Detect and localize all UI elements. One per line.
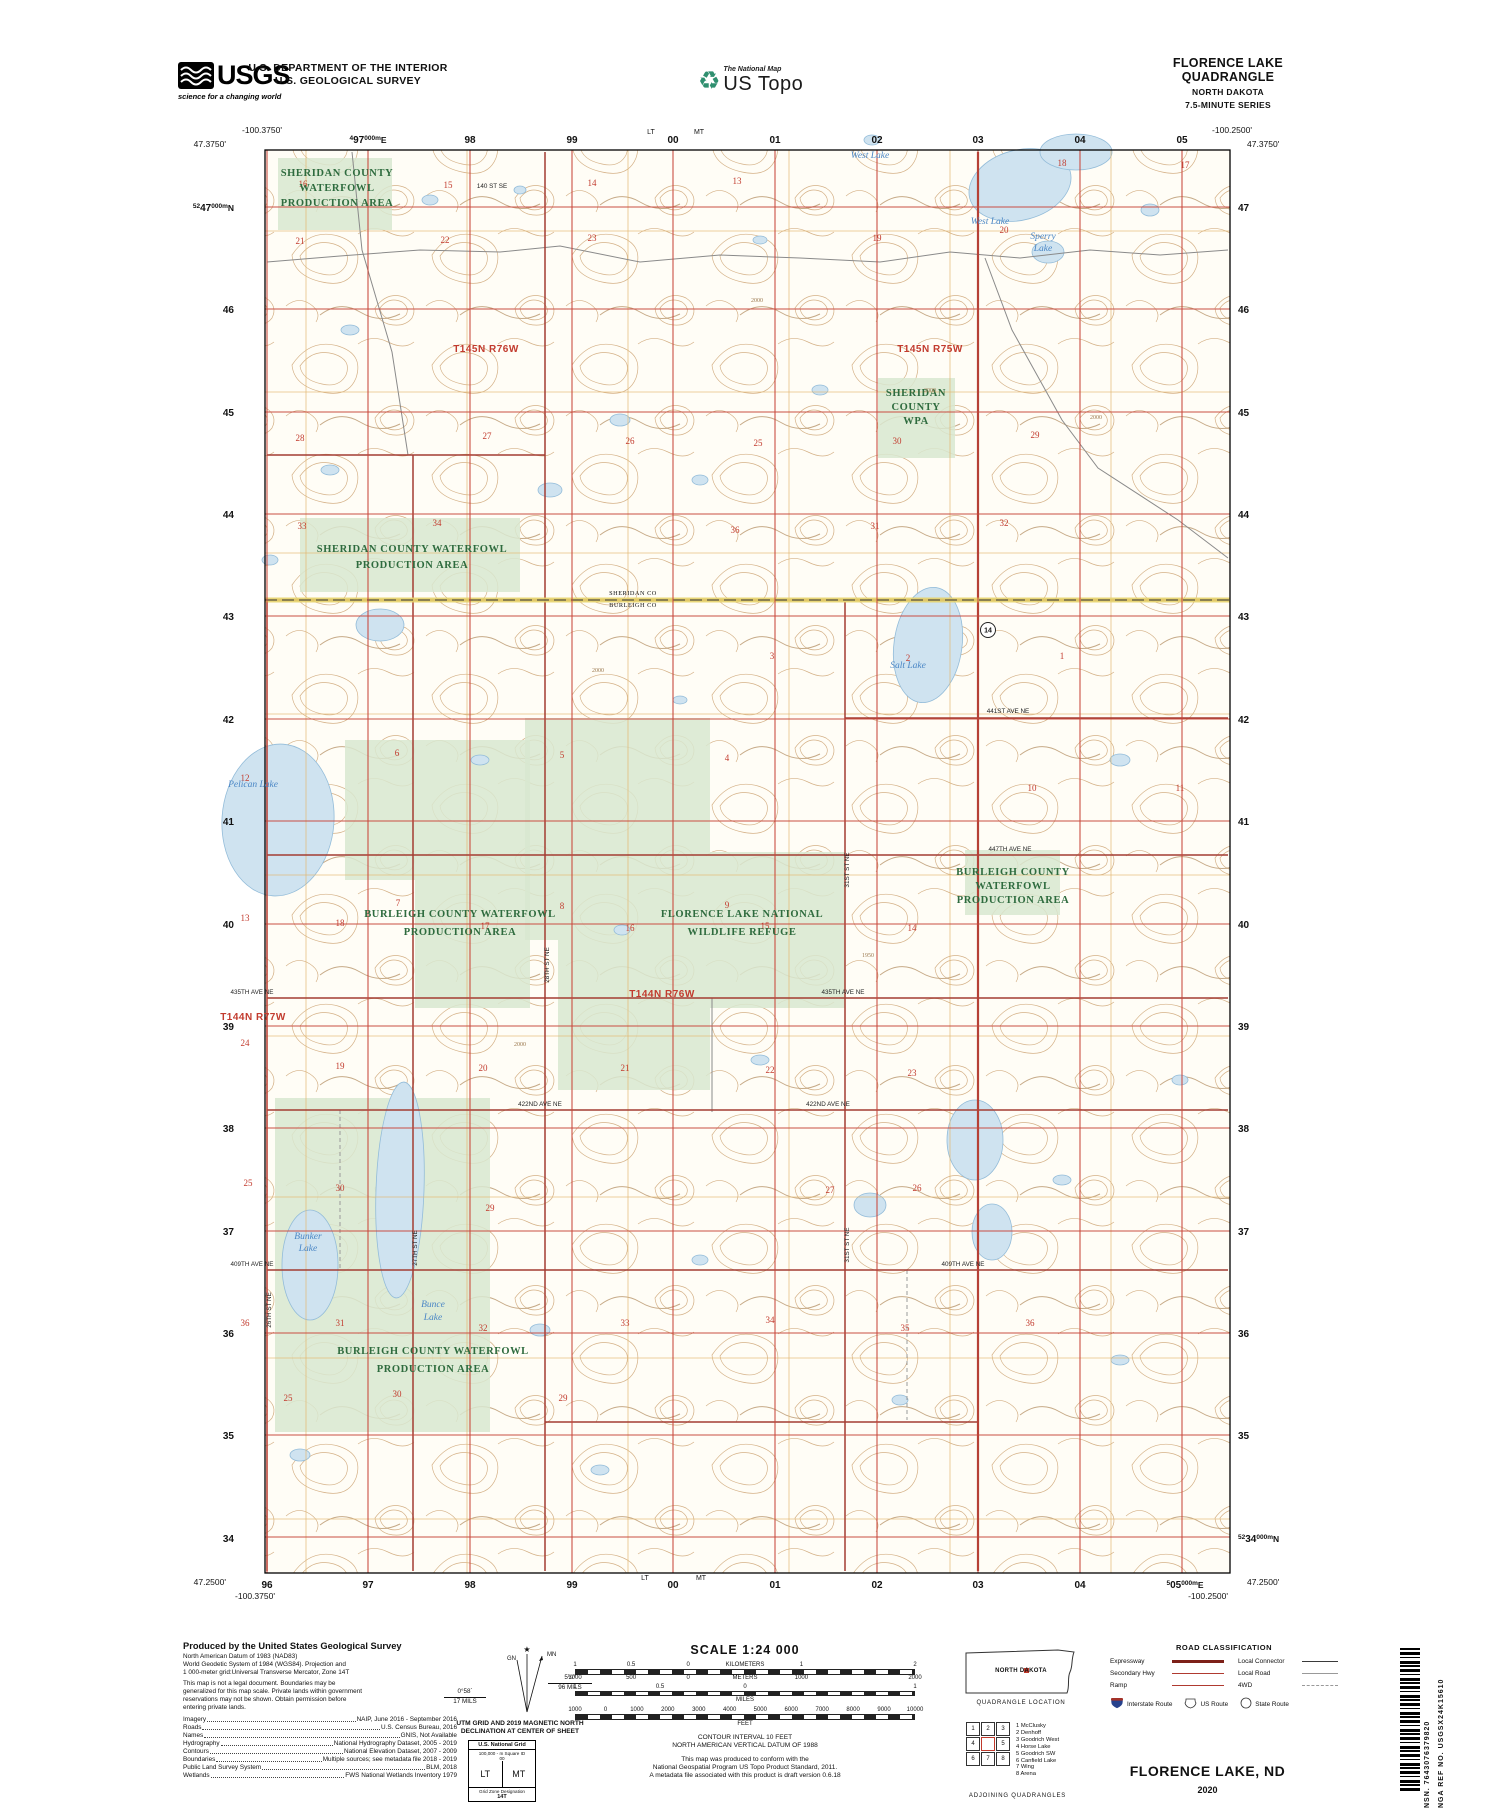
map-label-road: 422ND AVE NE (806, 1101, 850, 1108)
map-label-area: SHERIDAN (886, 388, 946, 399)
map-label-road: 140 ST SE (477, 183, 507, 190)
map-notes: CONTOUR INTERVAL 10 FEET NORTH AMERICAN … (535, 1734, 955, 1780)
scale-tick-labels: 1000010002000300040005000600070008000900… (575, 1707, 915, 1714)
map-label-grid: 36 (1238, 1329, 1250, 1340)
data-source-row: BoundariesMultiple sources; see metadata… (183, 1756, 457, 1764)
map-label-road: 409TH AVE NE (942, 1261, 985, 1268)
map-label-grid: 35 (1238, 1431, 1250, 1442)
map-label-twp: T145N R75W (897, 344, 963, 355)
dotted-leader (262, 1764, 425, 1771)
scale-tick: 1 (573, 1662, 576, 1668)
lake (812, 385, 828, 395)
map-label-road: 435TH AVE NE (822, 989, 865, 996)
map-label-grid: 02 (871, 1580, 883, 1591)
road-class-sample (1302, 1661, 1338, 1662)
map-label-grid: 36 (223, 1329, 235, 1340)
datum-notes: North American Datum of 1983 (NAD83)Worl… (183, 1653, 457, 1676)
map-label-grid: 99 (566, 135, 578, 146)
adjoining-cell: 6 (966, 1752, 980, 1766)
map-label-road: 26TH ST NE (266, 1292, 273, 1328)
map-label-sec: 27 (826, 1185, 836, 1195)
scale-block: SCALE 1:24 000 10.50KILOMETERS1210005000… (575, 1643, 915, 1731)
adjoining-cell: 4 (966, 1737, 980, 1751)
usng-zone-value: 14T (469, 1794, 535, 1800)
data-source-row: NamesGNIS, Not Available (183, 1732, 457, 1740)
road-class-label: 4WD (1238, 1682, 1302, 1689)
map-label-area: FLORENCE LAKE NATIONAL (661, 909, 823, 920)
source-value: National Hydrography Dataset, 2005 - 201… (334, 1740, 457, 1748)
gn-degrees: 0°58´ (444, 1688, 486, 1698)
interstate-route-legend: Interstate Route (1110, 1697, 1172, 1711)
map-label-coord: -100.2500' (1188, 1591, 1228, 1601)
map-label-ltmt: MT (694, 129, 705, 136)
map-label-grid: 98 (464, 135, 476, 146)
scale-tick: 0.5 (627, 1662, 635, 1668)
map-label-sec: 19 (336, 1061, 346, 1071)
sheet-name: FLORENCE LAKE, ND (1100, 1763, 1315, 1779)
produced-by: Produced by the United States Geological… (183, 1641, 457, 1651)
road-class-label: Local Connector (1238, 1658, 1302, 1665)
protected-area-polygon (300, 518, 520, 592)
adjoining-quad-name: 1 McClusky (1016, 1723, 1059, 1730)
lake (290, 1449, 310, 1461)
lake (1110, 754, 1130, 766)
dotted-leader (210, 1748, 343, 1755)
scale-tick: 0 (604, 1707, 607, 1713)
adjoining-quad-name: 4 Horse Lake (1016, 1744, 1059, 1751)
map-label-cnty: BURLEIGH CO (609, 602, 657, 609)
source-label: Roads (183, 1724, 201, 1732)
map-label-road: 435TH AVE NE (231, 989, 274, 996)
map-label-sec: 4 (725, 753, 730, 763)
nsn-number: NSN. 7643076379820 (1424, 1648, 1431, 1808)
adjoining-quad-name: 7 Wing (1016, 1764, 1059, 1771)
shield-label: State Route (1255, 1701, 1289, 1708)
map-label-water: Pelican Lake (227, 780, 278, 790)
map-label-sec: 30 (336, 1183, 346, 1193)
map-label-sec: 36 (731, 525, 741, 535)
map-label-grid: 43 (223, 612, 235, 623)
map-label-road: 28TH ST NE (544, 947, 551, 983)
scale-tick: 500 (626, 1675, 636, 1681)
interstate-shield-icon (1110, 1697, 1124, 1711)
svg-text:★: ★ (523, 1645, 530, 1654)
adjoining-cell: 3 (996, 1722, 1010, 1736)
map-label-grid: 39 (1238, 1022, 1250, 1033)
vertical-datum-note: NORTH AMERICAN VERTICAL DATUM OF 1988 (535, 1742, 955, 1750)
adjoining-cell: 5 (996, 1737, 1010, 1751)
map-label-grid: 47 (1238, 203, 1250, 214)
lake (356, 609, 404, 641)
map-label-sec: 25 (284, 1393, 294, 1403)
source-label: Wetlands (183, 1772, 210, 1780)
shield-label: Interstate Route (1127, 1701, 1172, 1708)
scale-tick: 8000 (846, 1707, 859, 1713)
map-label-sec: 33 (621, 1318, 631, 1328)
map-label-grid: 97 (362, 1580, 374, 1591)
map-label-grid: 46 (223, 305, 235, 316)
map-label-sec: 29 (1031, 430, 1041, 440)
road-classification-legend: ROAD CLASSIFICATION ExpresswayLocal Conn… (1110, 1643, 1338, 1711)
road-classification-title: ROAD CLASSIFICATION (1110, 1643, 1338, 1652)
data-sources-list: ImageryNAIP, June 2016 - September 2016R… (183, 1716, 457, 1780)
dotted-leader (221, 1740, 333, 1747)
map-label-sec: 32 (1000, 518, 1009, 528)
map-label-sec: 36 (241, 1318, 251, 1328)
map-label-sec: 21 (296, 236, 305, 246)
map-label-grid: 00 (667, 1580, 679, 1591)
map-label-water: Salt Lake (890, 661, 926, 671)
lake (341, 325, 359, 335)
map-label-road: 422ND AVE NE (518, 1101, 562, 1108)
map-label-sec: 6 (395, 748, 400, 758)
barcode (1400, 1648, 1420, 1793)
map-label-ltmt: LT (647, 129, 655, 136)
map-label-sec: 31 (871, 521, 880, 531)
credit-line: reservations may not be shown. Obtain pe… (183, 1696, 457, 1704)
map-label-area: WILDLIFE REFUGE (687, 927, 796, 938)
adjoining-center-cell (981, 1737, 995, 1751)
sheet-year: 2020 (1100, 1785, 1315, 1795)
map-label-coord: -100.3750' (242, 125, 282, 135)
adjoining-quads-caption: ADJOINING QUADRANGLES (935, 1793, 1100, 1799)
scale-tick-labels: 10005000METERS10002000 (575, 1675, 915, 1682)
road-class-sample (1302, 1673, 1338, 1674)
map-label-sec: 18 (336, 918, 346, 928)
map-label-water: Sperry (1030, 232, 1056, 242)
us-route-legend: US Route (1184, 1698, 1228, 1711)
map-label-sec: 21 (621, 1063, 630, 1073)
map-label-sec: 29 (559, 1393, 569, 1403)
road-class-label: Secondary Hwy (1110, 1670, 1172, 1677)
map-label-grid: 41 (223, 817, 235, 828)
map-label-sec: 17 (1181, 160, 1191, 170)
map-label-sec: 22 (441, 235, 450, 245)
map-label-grid: 43 (1238, 612, 1250, 623)
scale-tick: 0 (687, 1662, 690, 1668)
scale-tick: 6000 (785, 1707, 798, 1713)
map-label-grid: 40 (223, 920, 235, 931)
source-value: FWS National Wetlands Inventory 1979 (345, 1772, 457, 1780)
state-route-number: 14 (984, 628, 992, 635)
map-label-road: 441ST AVE NE (987, 708, 1029, 715)
lake (947, 1100, 1003, 1180)
scale-tick: 1000 (630, 1707, 643, 1713)
adjoining-quad-name: 8 Arena (1016, 1771, 1059, 1778)
adjoining-quad-name: 2 Denhoff (1016, 1730, 1059, 1737)
data-source-row: Public Land Survey SystemBLM, 2018 (183, 1764, 457, 1772)
map-label-sec: 18 (1058, 158, 1068, 168)
map-label-elev: 2000 (514, 1042, 526, 1048)
scale-tick: 1000 (795, 1675, 808, 1681)
map-label-sec: 36 (1026, 1318, 1036, 1328)
lake (692, 1255, 708, 1265)
map-layers: 1416151413181721222319202827262530293334… (193, 125, 1280, 1601)
road-class-label: Local Road (1238, 1670, 1302, 1677)
adjoining-cell: 2 (981, 1722, 995, 1736)
map-label-grid: 38 (223, 1124, 235, 1135)
scale-tick: 7000 (815, 1707, 828, 1713)
lake (753, 236, 767, 244)
map-label-coord: -100.3750' (235, 1591, 275, 1601)
scale-bars: 10.50KILOMETERS1210005000METERS100020001… (575, 1662, 915, 1731)
map-label-grid: 505000mE (1166, 1580, 1203, 1591)
state-name: NORTH DAKOTA (962, 1668, 1080, 1674)
map-label-water: West Lake (971, 217, 1009, 227)
map-label-water: Lake (1033, 244, 1052, 254)
map-label-sec: 10 (1028, 783, 1038, 793)
scale-tick: 3000 (692, 1707, 705, 1713)
nga-ref-number: NGA REF NO. USGSX24K15610 (1438, 1648, 1445, 1808)
lake (1141, 204, 1159, 216)
contour-interval-note: CONTOUR INTERVAL 10 FEET (535, 1734, 955, 1742)
scale-tick-labels: 10.50KILOMETERS12 (575, 1662, 915, 1669)
scale-caption: FEET (575, 1720, 915, 1729)
dotted-leader (204, 1732, 399, 1739)
quadrangle-location: NORTH DAKOTA QUADRANGLE LOCATION (962, 1648, 1080, 1706)
road-class-sample (1302, 1685, 1338, 1686)
lake (692, 475, 708, 485)
dotted-leader (202, 1724, 379, 1731)
map-label-grid: 45 (223, 408, 235, 419)
map-label-grid: 42 (223, 715, 235, 726)
source-label: Public Land Survey System (183, 1764, 261, 1772)
lake (514, 186, 526, 194)
map-label-area: PRODUCTION AREA (957, 895, 1070, 906)
lake (422, 195, 438, 205)
map-label-twp: T144N R76W (629, 989, 695, 1000)
road-class-sample (1172, 1685, 1224, 1686)
map-label-elev: 2000 (592, 668, 604, 674)
map-label-sec: 11 (1176, 783, 1185, 793)
map-label-ltmt: LT (641, 1575, 649, 1582)
map-label-grid: 46 (1238, 305, 1250, 316)
map-label-grid: 42 (1238, 715, 1250, 726)
map-label-sec: 31 (336, 1318, 345, 1328)
map-label-grid: 40 (1238, 920, 1250, 931)
us-shield-icon (1184, 1698, 1197, 1711)
map-label-sec: 19 (873, 233, 883, 243)
usng-square-mt: MT (503, 1761, 536, 1787)
dotted-leader (211, 1772, 345, 1779)
road-class-label: Expressway (1110, 1658, 1172, 1665)
scale-tick: 2000 (661, 1707, 674, 1713)
credit-line: generalized for this map scale. Private … (183, 1688, 457, 1696)
source-label: Boundaries (183, 1756, 215, 1764)
map-label-water: Lake (298, 1244, 317, 1254)
map-label-area: SHERIDAN COUNTY (281, 168, 394, 179)
map-label-sec: 22 (766, 1065, 775, 1075)
scale-tick: 0 (687, 1675, 690, 1681)
map-label-sec: 14 (908, 923, 918, 933)
scale-tick: 9000 (877, 1707, 890, 1713)
map-label-sec: 13 (733, 176, 743, 186)
mn-label: MN (547, 1652, 556, 1658)
map-label-sec: 29 (486, 1203, 496, 1213)
gn-declination-value: 0°58´ 17 MILS (444, 1688, 486, 1705)
map-label-area: BURLEIGH COUNTY WATERFOWL (337, 1346, 529, 1357)
gn-label: GN (507, 1656, 516, 1662)
map-label-elev: 2000 (1090, 415, 1102, 421)
source-label: Contours (183, 1748, 209, 1756)
map-label-coord: 47.2500' (1247, 1577, 1280, 1587)
scale-tick: 5000 (754, 1707, 767, 1713)
map-label-sec: 30 (393, 1389, 403, 1399)
lake (1111, 1355, 1129, 1365)
source-value: Multiple sources; see metadata file 2018… (323, 1756, 457, 1764)
adjoining-quad-name: 5 Goodrich SW (1016, 1751, 1059, 1758)
production-credits: Produced by the United States Geological… (183, 1641, 457, 1780)
lake (1053, 1175, 1071, 1185)
adjoining-cell: 8 (996, 1752, 1010, 1766)
shield-label: US Route (1200, 1701, 1228, 1708)
map-label-sec: 25 (754, 438, 764, 448)
adjoining-quad-name: 6 Canfield Lake (1016, 1758, 1059, 1765)
credit-line: World Geodetic System of 1984 (WGS84). P… (183, 1661, 457, 1669)
usgs-topo-sheet: USGS science for a changing world U.S. D… (0, 0, 1500, 1813)
map-label-road: 27TH ST NE (412, 1230, 419, 1266)
map-label-water: Bunker (294, 1232, 322, 1242)
credit-line: North American Datum of 1983 (NAD83) (183, 1653, 457, 1661)
map-label-coord: -100.2500' (1212, 125, 1252, 135)
topo-map: 1416151413181721222319202827262530293334… (0, 0, 1500, 1620)
map-label-sec: 1 (1060, 651, 1065, 661)
map-label-sec: 35 (901, 1323, 911, 1333)
map-label-area: BURLEIGH COUNTY WATERFOWL (364, 909, 556, 920)
map-label-grid: 02 (871, 135, 883, 146)
map-label-road: 31ST ST NE (844, 1227, 851, 1262)
map-label-sec: 24 (241, 1038, 251, 1048)
scale-tick: 2000 (908, 1675, 921, 1681)
map-label-grid: 03 (972, 135, 984, 146)
scale-title: SCALE 1:24 000 (575, 1643, 915, 1657)
road-class-sample (1172, 1660, 1224, 1663)
map-label-grid: 03 (972, 1580, 984, 1591)
source-label: Imagery (183, 1716, 206, 1724)
map-label-elev: 1950 (862, 953, 874, 959)
lake (591, 1465, 609, 1475)
map-label-grid: 45 (1238, 408, 1250, 419)
map-label-area: COUNTY (891, 402, 940, 413)
map-label-sec: 26 (913, 1183, 923, 1193)
lake (1172, 1075, 1188, 1085)
scale-tick: 1 (913, 1684, 916, 1690)
map-label-twp: T145N R76W (453, 344, 519, 355)
map-label-water: Bunce (421, 1300, 445, 1310)
source-value: National Elevation Dataset, 2007 - 2009 (344, 1748, 457, 1756)
source-label: Hydrography (183, 1740, 220, 1748)
lake (610, 414, 630, 426)
scale-tick: 1000 (568, 1707, 581, 1713)
source-value: BLM, 2018 (426, 1764, 457, 1772)
lake (321, 465, 339, 475)
map-label-area: WPA (903, 416, 929, 427)
state-shield-icon (1240, 1697, 1252, 1711)
data-source-row: ImageryNAIP, June 2016 - September 2016 (183, 1716, 457, 1724)
lake (530, 1324, 550, 1336)
map-label-grid: 39 (223, 1022, 235, 1033)
dotted-leader (216, 1756, 321, 1763)
map-label-sec: 28 (296, 433, 306, 443)
credit-line: entering private lands. (183, 1704, 457, 1712)
map-label-coord: 47.3750' (1247, 139, 1280, 149)
credit-line: This map is not a legal document. Bounda… (183, 1680, 457, 1688)
data-source-row: ContoursNational Elevation Dataset, 2007… (183, 1748, 457, 1756)
map-label-area: BURLEIGH COUNTY (956, 867, 1070, 878)
map-label-road: 447TH AVE NE (989, 846, 1032, 853)
map-label-sec: 23 (908, 1068, 918, 1078)
map-label-sec: 34 (433, 518, 443, 528)
scale-tick-labels: 10.501 (575, 1684, 915, 1691)
scale-tick: KILOMETERS (726, 1662, 765, 1668)
map-label-sec: 32 (479, 1323, 488, 1333)
state-route-legend: State Route (1240, 1697, 1289, 1711)
scale-tick: 2 (913, 1662, 916, 1668)
map-label-road: 409TH AVE NE (231, 1261, 274, 1268)
road-class-label: Ramp (1110, 1682, 1172, 1689)
map-label-coord: 47.2500' (194, 1577, 227, 1587)
lake (538, 483, 562, 497)
map-label-grid: 44 (223, 510, 235, 521)
map-label-road: 31ST ST NE (844, 852, 851, 887)
us-national-grid-box: U.S. National Grid 100,000 - m Square ID… (468, 1740, 536, 1802)
source-label: Names (183, 1732, 203, 1740)
map-label-sec: 3 (770, 651, 775, 661)
map-label-ltmt: MT (696, 1575, 707, 1582)
map-label-grid: 98 (464, 1580, 476, 1591)
adjoining-quad-name: 3 Goodrich West (1016, 1737, 1059, 1744)
scale-tick: 4000 (723, 1707, 736, 1713)
map-label-area: WATERFOWL (299, 183, 374, 194)
road-class-sample (1172, 1673, 1224, 1674)
map-label-sec: 7 (396, 898, 401, 908)
map-label-grid: 35 (223, 1431, 235, 1442)
map-label-sec: 8 (560, 901, 565, 911)
map-label-grid: 37 (1238, 1227, 1250, 1238)
adjoining-quads-grid: 12345678 (966, 1722, 1010, 1766)
scale-tick: 1 (573, 1684, 576, 1690)
map-label-area: SHERIDAN COUNTY WATERFOWL (317, 544, 507, 555)
scale-tick: 1 (800, 1662, 803, 1668)
lake (673, 696, 687, 704)
map-label-sec: 14 (588, 178, 598, 188)
dotted-leader (207, 1716, 355, 1723)
map-label-area: PRODUCTION AREA (356, 560, 469, 571)
map-label-elev: 2000 (924, 388, 936, 394)
map-label-elev: 2000 (751, 298, 763, 304)
scale-tick: 0.5 (656, 1684, 664, 1690)
map-label-grid: 5234000mN (1238, 1534, 1279, 1545)
map-label-grid: 01 (769, 135, 781, 146)
adjoining-cell: 1 (966, 1722, 980, 1736)
data-source-row: WetlandsFWS National Wetlands Inventory … (183, 1772, 457, 1780)
scale-tick: METERS (732, 1675, 757, 1681)
map-label-grid: 5247000mN (193, 203, 234, 214)
map-label-grid: 01 (769, 1580, 781, 1591)
map-label-grid: 41 (1238, 817, 1250, 828)
scale-tick: 0 (743, 1684, 746, 1690)
map-label-cnty: SHERIDAN CO (609, 590, 657, 597)
adjoining-cell: 7 (981, 1752, 995, 1766)
map-label-water: West Lake (851, 151, 889, 161)
lake (751, 1055, 769, 1065)
adjoining-quads-names: 1 McClusky2 Denhoff3 Goodrich West4 Hors… (1016, 1723, 1059, 1778)
quadrangle-location-caption: QUADRANGLE LOCATION (962, 1700, 1080, 1706)
scale-caption: MILES (575, 1696, 915, 1705)
map-label-sec: 13 (241, 913, 251, 923)
map-label-grid: 99 (566, 1580, 578, 1591)
map-label-water: Lake (423, 1313, 442, 1323)
